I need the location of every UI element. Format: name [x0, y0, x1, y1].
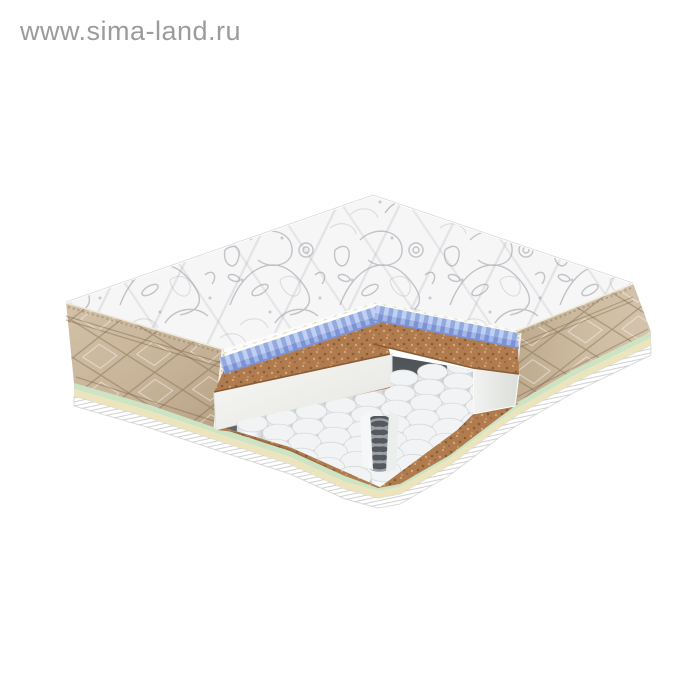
- product-photo-canvas: www.sima-land.ru: [0, 0, 700, 700]
- mattress-cutaway-illustration: [0, 0, 700, 700]
- mattress: [40, 170, 660, 540]
- pocket-spring-body: [514, 441, 549, 498]
- watermark-text: www.sima-land.ru: [20, 16, 241, 47]
- cut-open-spring-coil: [360, 411, 399, 473]
- pocket-spring-body: [484, 447, 519, 504]
- pocket-spring-top: [388, 370, 418, 386]
- pocket-spring-top: [514, 430, 549, 451]
- pocket-spring-top: [443, 373, 474, 390]
- pocket-spring-top: [414, 379, 445, 396]
- pocket-spring-top: [418, 364, 448, 380]
